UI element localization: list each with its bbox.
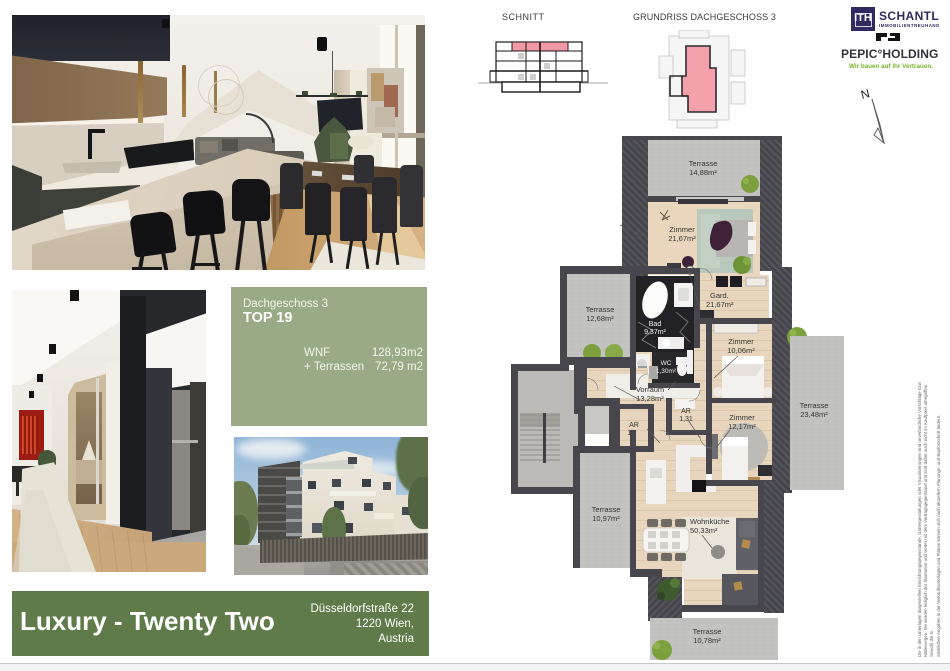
svg-text:21,67m²: 21,67m² xyxy=(706,300,734,309)
svg-text:Terrasse: Terrasse xyxy=(689,159,718,168)
svg-text:13,28m²: 13,28m² xyxy=(636,394,664,403)
svg-text:50,33m²: 50,33m² xyxy=(690,526,718,535)
svg-text:Terrasse: Terrasse xyxy=(800,401,829,410)
svg-text:1,31: 1,31 xyxy=(679,416,693,423)
svg-text:AR: AR xyxy=(681,408,691,415)
svg-text:12,17m²: 12,17m² xyxy=(728,422,756,431)
svg-text:23,48m²: 23,48m² xyxy=(800,410,828,419)
svg-text:Terrasse: Terrasse xyxy=(592,505,621,514)
svg-text:Bad: Bad xyxy=(649,321,662,328)
svg-text:10,97m²: 10,97m² xyxy=(592,514,620,523)
svg-text:21,67m²: 21,67m² xyxy=(668,234,696,243)
svg-text:Gard.: Gard. xyxy=(710,291,729,300)
svg-text:10,06m²: 10,06m² xyxy=(727,346,755,355)
svg-text:10,78m²: 10,78m² xyxy=(693,636,721,645)
svg-text:12,68m²: 12,68m² xyxy=(586,314,614,323)
svg-text:Zimmer: Zimmer xyxy=(669,225,695,234)
svg-text:Zimmer: Zimmer xyxy=(729,413,755,422)
svg-text:Zimmer: Zimmer xyxy=(728,337,754,346)
svg-text:Wohnküche: Wohnküche xyxy=(690,517,729,526)
svg-text:AR: AR xyxy=(629,422,639,429)
svg-text:14,88m²: 14,88m² xyxy=(689,168,717,177)
svg-text:9,37m²: 9,37m² xyxy=(644,329,666,336)
svg-text:N: N xyxy=(859,86,871,102)
svg-text:Terrasse: Terrasse xyxy=(693,627,722,636)
svg-text:Terrasse: Terrasse xyxy=(586,305,615,314)
svg-text:1,30m²: 1,30m² xyxy=(656,368,677,375)
svg-text:WC: WC xyxy=(661,360,672,367)
